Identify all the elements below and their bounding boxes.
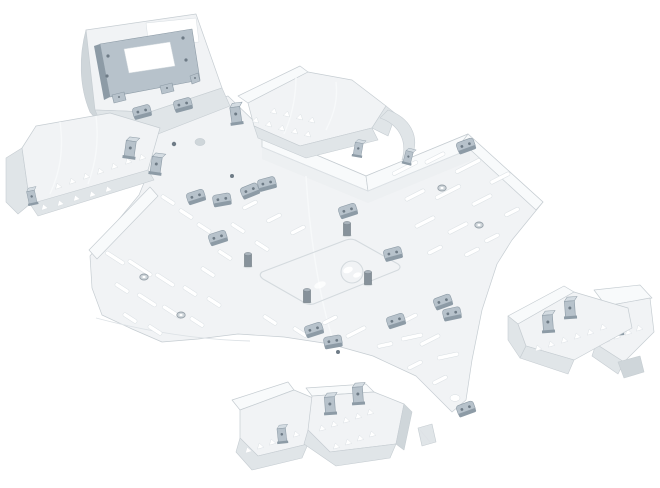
standoff-spacer [302, 288, 311, 304]
skid-plate-kit-illustration [0, 0, 660, 488]
standoff-spacer [363, 270, 372, 286]
footpeg-guards [232, 382, 436, 470]
bolt-head [230, 174, 234, 178]
standoff-spacer [342, 221, 351, 237]
tip-hole [450, 395, 460, 402]
washer [140, 274, 148, 280]
washer [438, 185, 446, 191]
footpeg-end-tab [418, 424, 436, 446]
rear-arm-guards [508, 285, 654, 378]
frame-hole [195, 138, 205, 145]
bolt-head [336, 350, 340, 354]
standoff-spacer [243, 252, 252, 268]
washer [177, 312, 185, 318]
product-render: Exploded 3D render of an aluminium ATV u… [0, 0, 660, 488]
footpeg-guard-left [232, 382, 318, 470]
footpeg-guard-right [304, 382, 436, 466]
washer [475, 222, 483, 228]
bolt-head [172, 142, 176, 146]
